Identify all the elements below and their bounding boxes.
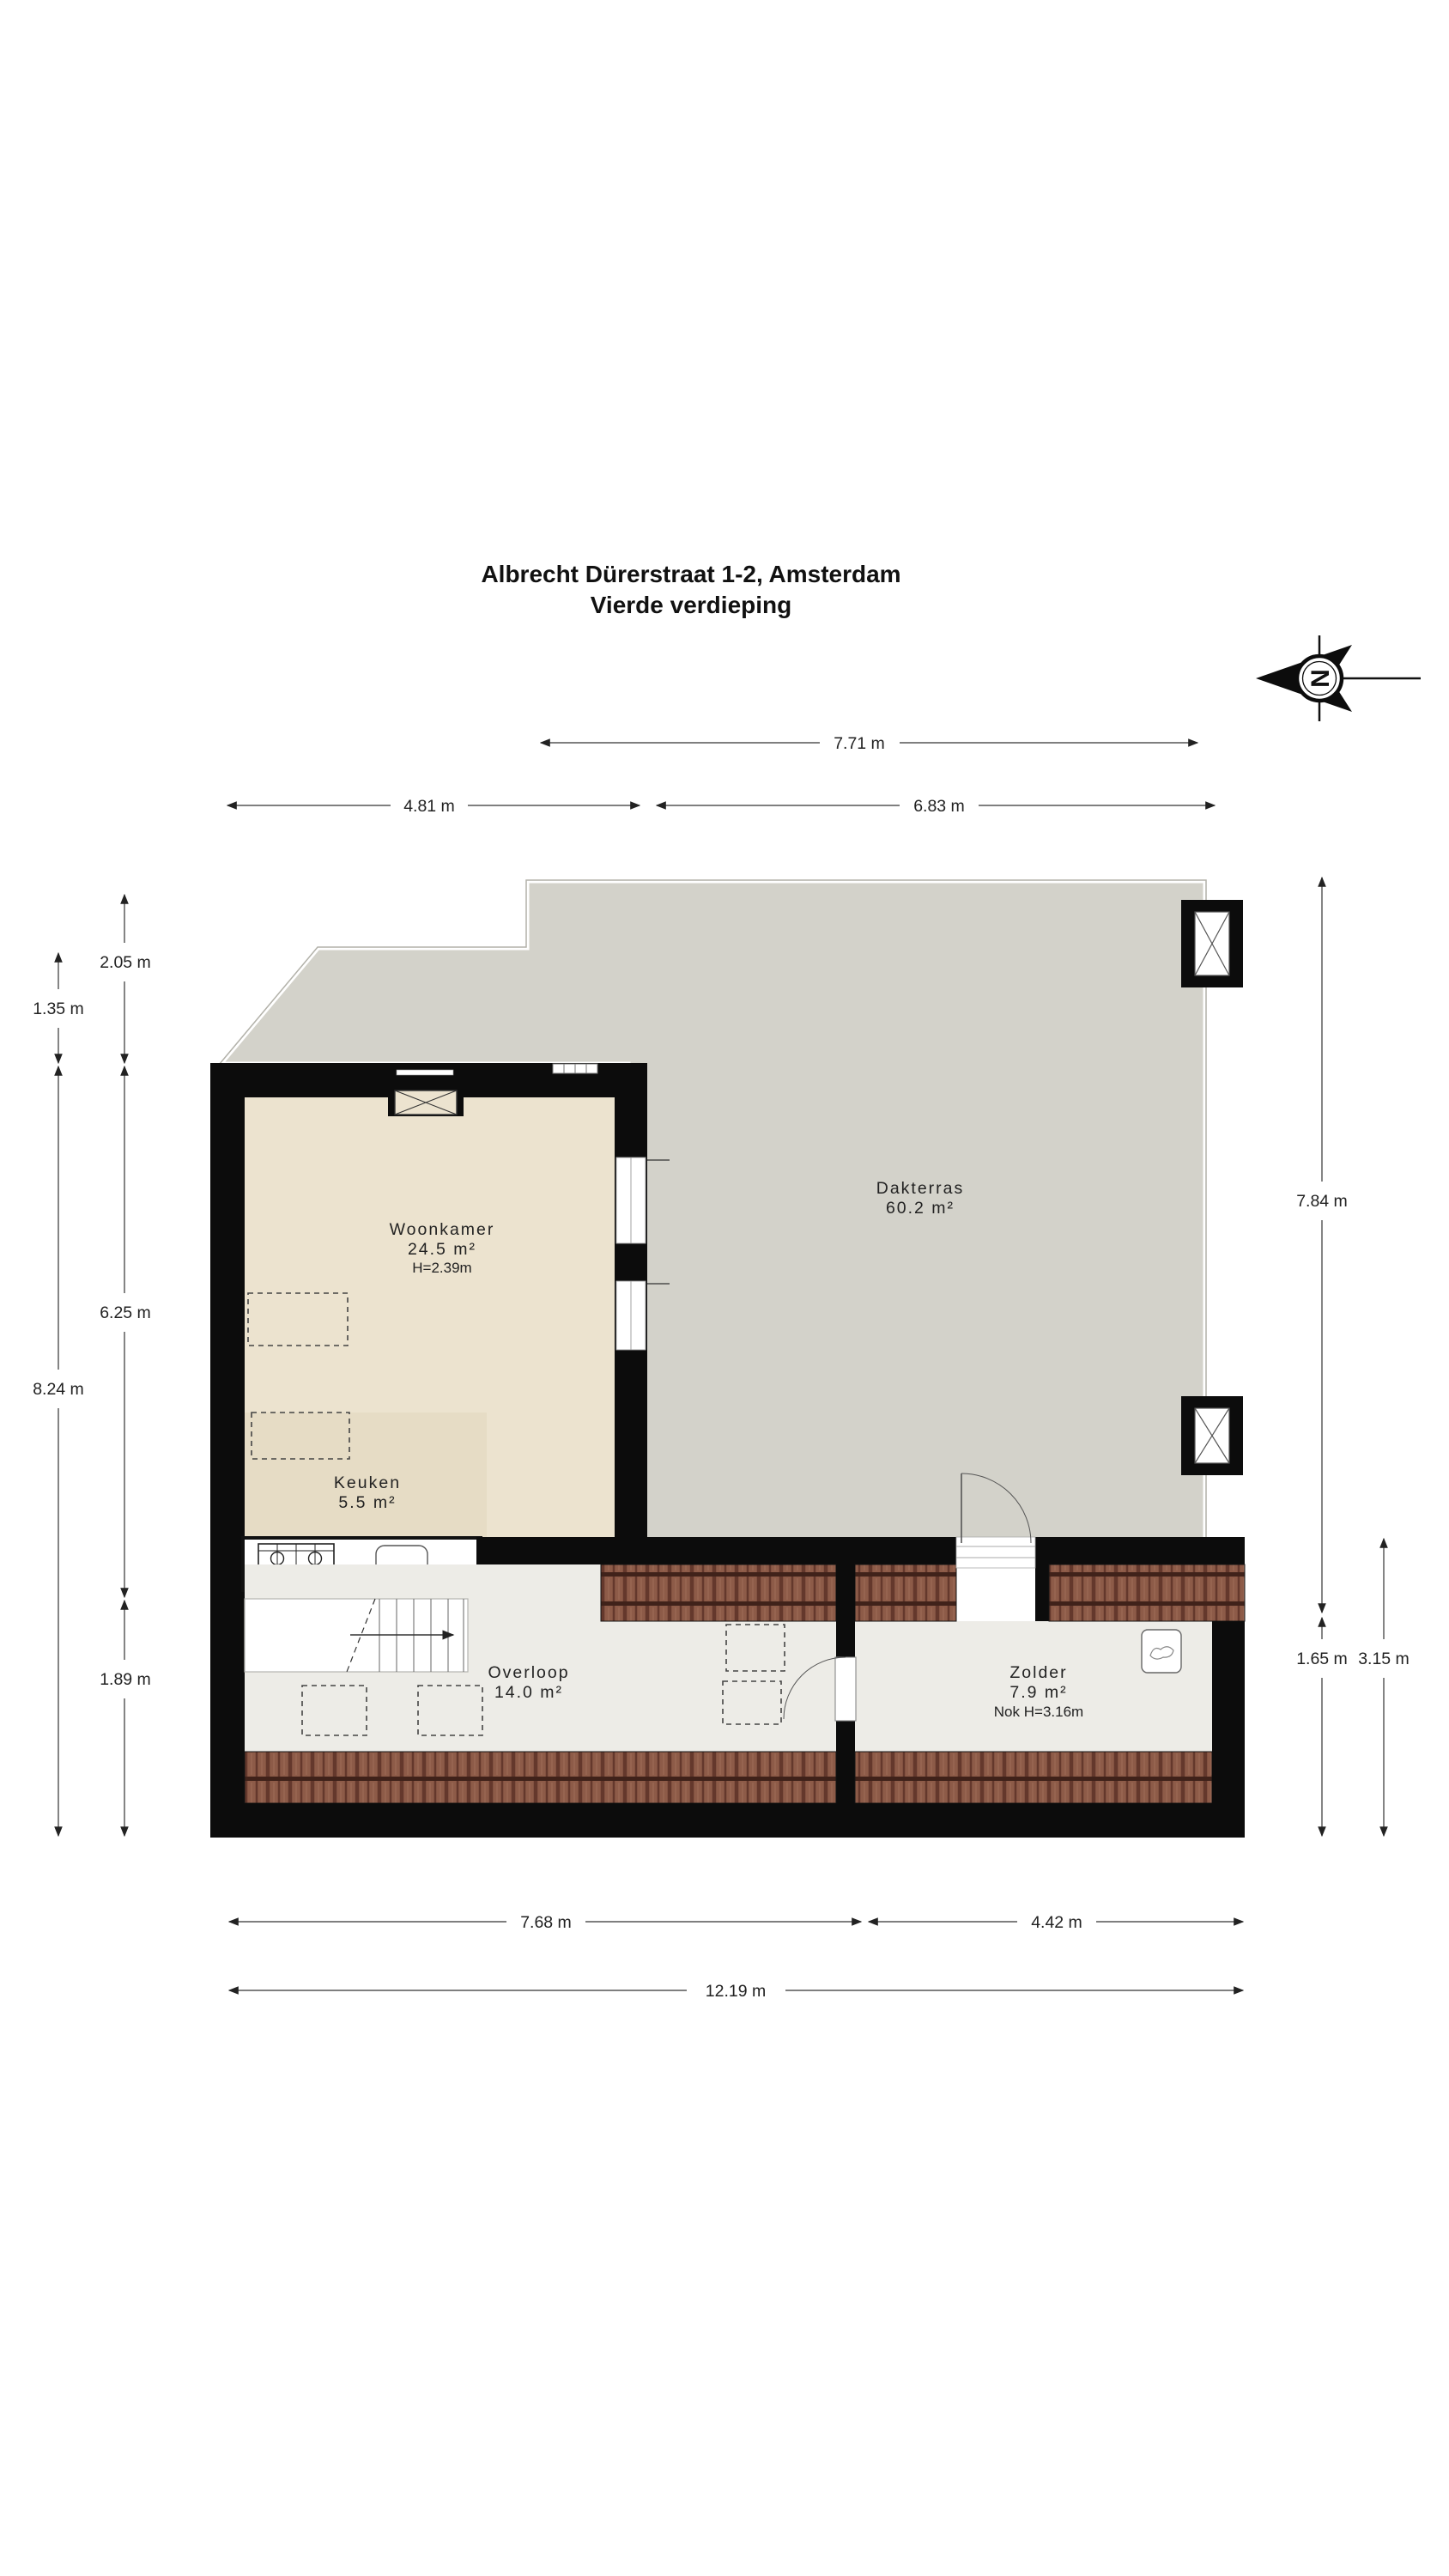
- staircase: [245, 1599, 468, 1672]
- roof-tiles-lower-right: [855, 1752, 1212, 1803]
- dim-bottom-left: 7.68 m: [229, 1913, 861, 1932]
- title-floor: Vierde verdieping: [591, 592, 791, 618]
- flue-shaft: [388, 1070, 464, 1116]
- boiler-body: [1142, 1630, 1181, 1673]
- dim-left-inner-top: 2.05 m: [100, 895, 151, 1063]
- dimension-value: 2.05 m: [100, 953, 151, 972]
- room-area: 7.9 m²: [1009, 1683, 1067, 1702]
- dim-right-outer-bottom: 3.15 m: [1358, 1539, 1410, 1836]
- wall-south: [210, 1803, 1245, 1838]
- floorplan-page: Albrecht Dürerstraat 1-2, Amsterdam Vier…: [0, 0, 1449, 2576]
- wall-terrace-south-right: [1035, 1537, 1245, 1564]
- dimension-value: 1.65 m: [1296, 1649, 1348, 1668]
- door-leaf: [835, 1657, 856, 1721]
- dim-bottom-right: 4.42 m: [869, 1913, 1243, 1932]
- floorplan-canvas: Albrecht Dürerstraat 1-2, Amsterdam Vier…: [0, 0, 1449, 2576]
- dimension-value: 7.71 m: [834, 734, 885, 753]
- dim-top-total: 7.71 m: [541, 734, 1197, 753]
- roof-tiles-upper-right: [1049, 1564, 1245, 1621]
- wall-east-attic: [1212, 1621, 1245, 1838]
- roof-tiles-lower-left: [245, 1752, 836, 1803]
- dimension-value: 12.19 m: [706, 1982, 766, 2001]
- title-address: Albrecht Dürerstraat 1-2, Amsterdam: [481, 561, 900, 587]
- room-label-keuken: Keuken 5.5 m²: [334, 1473, 401, 1512]
- dimension-value: 8.24 m: [33, 1380, 84, 1399]
- compass-north-arrow: N: [1256, 635, 1421, 721]
- wall-terrace-south-left: [476, 1537, 956, 1564]
- dim-right-inner-bottom: 1.65 m: [1296, 1618, 1348, 1836]
- dim-top-left: 4.81 m: [227, 797, 640, 816]
- dimension-value: 6.83 m: [913, 797, 965, 816]
- room-label-dakterras: Dakterras 60.2 m²: [876, 1179, 965, 1218]
- room-ridge-height: Nok H=3.16m: [994, 1704, 1083, 1720]
- room-area: 5.5 m²: [338, 1493, 396, 1512]
- room-name: Overloop: [488, 1663, 569, 1682]
- dim-left-inner-middle: 6.25 m: [100, 1066, 151, 1597]
- dimension-value: 1.35 m: [33, 999, 84, 1018]
- dimension-value: 1.89 m: [100, 1670, 151, 1689]
- dimension-value: 3.15 m: [1358, 1649, 1410, 1668]
- chimney-middle: [1181, 1396, 1243, 1475]
- wall-west: [210, 1063, 245, 1838]
- door-threshold: [956, 1537, 1035, 1568]
- room-name: Keuken: [334, 1473, 401, 1492]
- dim-top-right: 6.83 m: [657, 797, 1215, 816]
- dim-bottom-total: 12.19 m: [229, 1982, 1243, 2001]
- compass-letter: N: [1307, 669, 1335, 688]
- room-name: Dakterras: [876, 1179, 965, 1198]
- room-ceiling-height: H=2.39m: [412, 1260, 471, 1276]
- dim-right-terrace: 7.84 m: [1296, 878, 1348, 1613]
- door-jamb: [1035, 1537, 1049, 1621]
- dimension-value: 7.68 m: [520, 1913, 572, 1932]
- dimension-value: 4.81 m: [403, 797, 455, 816]
- roof-tiles-upper-left: [601, 1564, 836, 1621]
- room-area: 60.2 m²: [886, 1199, 955, 1218]
- room-label-overloop: Overloop 14.0 m²: [488, 1663, 569, 1702]
- window-north: [553, 1064, 597, 1073]
- wall-landing-attic-upper: [836, 1564, 855, 1660]
- room-area: 24.5 m²: [408, 1240, 476, 1259]
- room-area: 14.0 m²: [494, 1683, 563, 1702]
- roof-tiles-upper-middle: [855, 1564, 956, 1621]
- boiler-unit: [1142, 1630, 1181, 1673]
- dimension-value: 4.42 m: [1031, 1913, 1082, 1932]
- flue-vent-slit: [397, 1070, 453, 1075]
- dim-left-outer-middle: 8.24 m: [33, 1066, 84, 1836]
- chimney-top: [1181, 900, 1243, 987]
- room-name: Woonkamer: [390, 1220, 495, 1239]
- dimension-value: 6.25 m: [100, 1303, 151, 1322]
- dim-left-outer-top: 1.35 m: [33, 953, 84, 1063]
- dimension-value: 7.84 m: [1296, 1192, 1348, 1211]
- dim-left-inner-bottom: 1.89 m: [100, 1601, 151, 1836]
- room-name: Zolder: [1009, 1663, 1067, 1682]
- plan-title: Albrecht Dürerstraat 1-2, Amsterdam Vier…: [481, 561, 900, 618]
